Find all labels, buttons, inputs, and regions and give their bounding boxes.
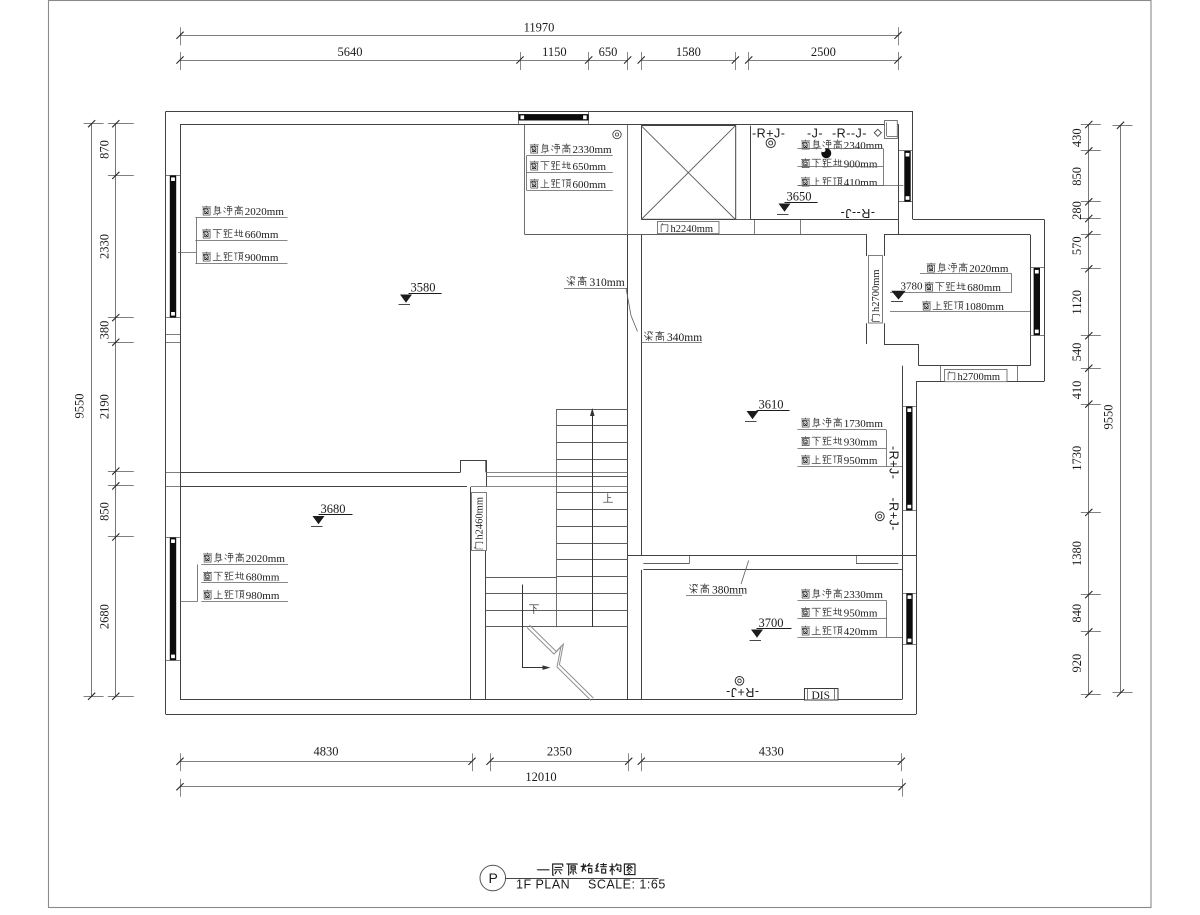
svg-text:850: 850 [1070, 167, 1084, 186]
svg-text:2020mm: 2020mm [245, 206, 285, 218]
svg-text:680mm: 680mm [246, 572, 280, 584]
svg-text:1F PLAN: 1F PLAN [516, 878, 570, 892]
svg-text:3780: 3780 [901, 281, 924, 293]
svg-text:-J-: -J- [807, 127, 823, 141]
svg-text:950mm: 950mm [844, 608, 878, 620]
svg-text:3610: 3610 [759, 398, 784, 412]
svg-text:1580: 1580 [676, 45, 701, 59]
svg-text:410mm: 410mm [844, 177, 878, 189]
svg-text:870: 870 [98, 140, 112, 159]
svg-text:3650: 3650 [787, 190, 812, 204]
svg-text:9550: 9550 [73, 394, 87, 419]
svg-text:h2700mm: h2700mm [871, 269, 882, 312]
svg-text:650: 650 [599, 45, 618, 59]
svg-text:4330: 4330 [759, 745, 784, 759]
svg-text:570: 570 [1070, 236, 1084, 255]
svg-text:SCALE: 1:65: SCALE: 1:65 [588, 878, 666, 892]
svg-text:930mm: 930mm [844, 437, 878, 449]
svg-text:2350: 2350 [547, 745, 572, 759]
svg-text:h2700mm: h2700mm [958, 372, 1001, 383]
svg-text:900mm: 900mm [844, 159, 878, 171]
svg-text:2680: 2680 [98, 604, 112, 629]
svg-text:380: 380 [98, 321, 112, 340]
svg-text:h2240mm: h2240mm [671, 224, 714, 235]
svg-text:9550: 9550 [1102, 405, 1116, 430]
svg-text:3700: 3700 [759, 616, 784, 630]
svg-text:380mm: 380mm [712, 585, 747, 597]
svg-text:-R--J-: -R--J- [840, 206, 875, 220]
svg-text:12010: 12010 [525, 770, 556, 784]
svg-text:-R--J-: -R--J- [832, 127, 867, 141]
svg-text:660mm: 660mm [245, 229, 279, 241]
svg-text:-R+J-: -R+J- [887, 498, 901, 531]
svg-text:DIS: DIS [812, 690, 831, 702]
svg-text:840: 840 [1070, 604, 1084, 623]
svg-text:980mm: 980mm [246, 590, 280, 602]
svg-text:1730: 1730 [1070, 446, 1084, 471]
svg-text:540: 540 [1070, 343, 1084, 362]
svg-text:600mm: 600mm [573, 179, 607, 191]
svg-text:1150: 1150 [542, 45, 567, 59]
svg-text:1730mm: 1730mm [844, 418, 884, 430]
svg-text:-R+J-: -R+J- [726, 685, 759, 699]
svg-text:2020mm: 2020mm [246, 553, 286, 565]
svg-text:2340mm: 2340mm [844, 140, 884, 152]
svg-text:410: 410 [1070, 381, 1084, 400]
svg-text:h2460mm: h2460mm [474, 497, 485, 540]
svg-text:850: 850 [98, 502, 112, 521]
svg-text:310mm: 310mm [590, 277, 625, 289]
svg-text:-R+J-: -R+J- [887, 446, 901, 479]
svg-text:3580: 3580 [411, 281, 436, 295]
svg-text:2190: 2190 [98, 394, 112, 419]
svg-text:430: 430 [1070, 128, 1084, 147]
svg-text:2330mm: 2330mm [844, 589, 884, 601]
svg-text:280: 280 [1070, 201, 1084, 220]
svg-text:2330: 2330 [98, 234, 112, 259]
svg-text:3680: 3680 [321, 502, 346, 516]
svg-text:5640: 5640 [338, 45, 363, 59]
svg-text:2500: 2500 [811, 45, 836, 59]
svg-text:420mm: 420mm [844, 626, 878, 638]
svg-text:1380: 1380 [1070, 541, 1084, 566]
svg-text:11970: 11970 [524, 21, 555, 35]
svg-text:1120: 1120 [1070, 290, 1084, 315]
svg-text:920: 920 [1070, 654, 1084, 673]
svg-text:900mm: 900mm [245, 252, 279, 264]
svg-text:2330mm: 2330mm [573, 144, 613, 156]
svg-text:4830: 4830 [314, 745, 339, 759]
svg-text:650mm: 650mm [573, 161, 607, 173]
svg-text:P: P [489, 870, 498, 886]
svg-text:950mm: 950mm [844, 455, 878, 467]
